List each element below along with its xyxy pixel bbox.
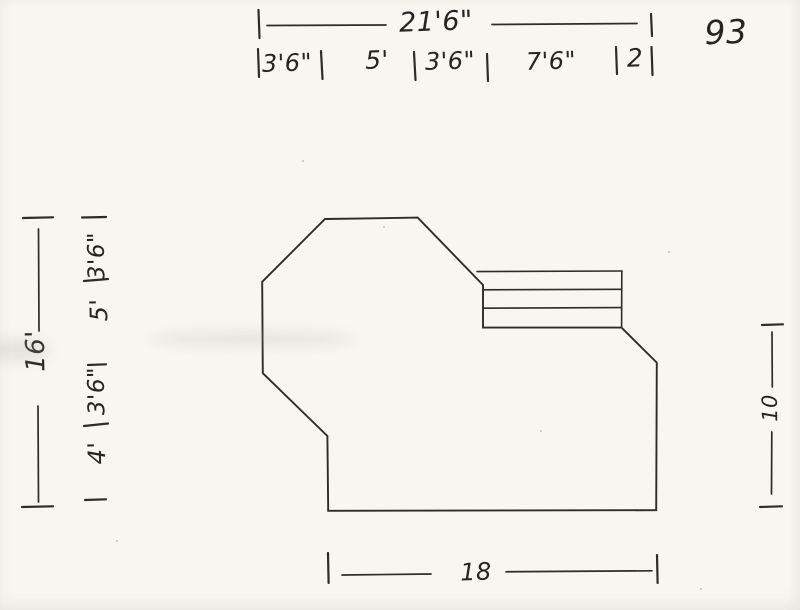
tick-left-seg-4 xyxy=(84,424,108,427)
tick-top-seg-5 xyxy=(616,47,617,74)
tick-top-seg-6 xyxy=(652,47,653,75)
stairs-step-line-1 xyxy=(483,289,621,290)
stairs-top-line xyxy=(477,271,622,272)
dim-top-segment-label-5: 2 xyxy=(626,43,643,73)
dim-right-label: 10 xyxy=(758,394,782,422)
dimline-bottom-left xyxy=(342,574,431,575)
dimline-left-overall-lower xyxy=(38,406,39,502)
tick-top-overall-left xyxy=(259,10,260,38)
dim-bottom xyxy=(328,553,658,583)
tick-right-bottom xyxy=(760,506,782,507)
tick-bottom-right xyxy=(657,555,658,583)
dim-left-segment-label-1: 3'6" xyxy=(84,232,111,281)
tick-top-seg-2 xyxy=(321,51,323,79)
tick-top-seg-1 xyxy=(258,49,259,77)
tick-right-top xyxy=(762,324,783,325)
deck-outline-path xyxy=(262,218,657,511)
tick-left-overall-top xyxy=(23,217,53,218)
deck-outline xyxy=(262,218,657,511)
scanned-plan-page: 21'6" 3'6" 5' 3'6" 7'6" 2 93 16' 3'6" 5'… xyxy=(0,0,800,610)
plan-drawing-svg xyxy=(0,0,800,610)
tick-top-overall-right xyxy=(651,14,652,36)
dim-left-segment-label-4: 4' xyxy=(83,441,111,464)
tick-top-seg-3 xyxy=(414,52,416,80)
dimline-top-overall-left xyxy=(267,25,386,26)
stairs-step-line-2 xyxy=(483,308,621,309)
dim-top-segment-label-1: 3'6" xyxy=(261,48,312,78)
dimline-top-overall-right xyxy=(492,24,637,25)
page-number: 93 xyxy=(704,12,748,52)
dim-top-segment-label-2: 5' xyxy=(365,45,390,75)
dim-bottom-label: 18 xyxy=(460,557,493,586)
dim-left-segment-label-2: 5' xyxy=(85,298,113,321)
dim-top-overall-label: 21'6" xyxy=(399,5,474,39)
tick-left-seg-3 xyxy=(88,364,106,365)
dim-top-segment-label-3: 3'6" xyxy=(424,46,475,76)
dimline-left-overall-upper xyxy=(39,229,40,331)
tick-left-seg-1 xyxy=(82,217,106,218)
dim-left-overall-label: 16' xyxy=(21,330,52,372)
dim-top-segment-label-4: 7'6" xyxy=(525,46,576,76)
stairs-steps xyxy=(477,271,622,328)
tick-top-seg-4 xyxy=(487,54,488,81)
tick-left-seg-5 xyxy=(85,499,106,500)
dim-left-segment-label-3: 3'6" xyxy=(84,367,111,416)
tick-bottom-left xyxy=(328,553,329,583)
tick-left-overall-bottom xyxy=(22,506,53,507)
dimline-bottom-right xyxy=(506,571,652,572)
